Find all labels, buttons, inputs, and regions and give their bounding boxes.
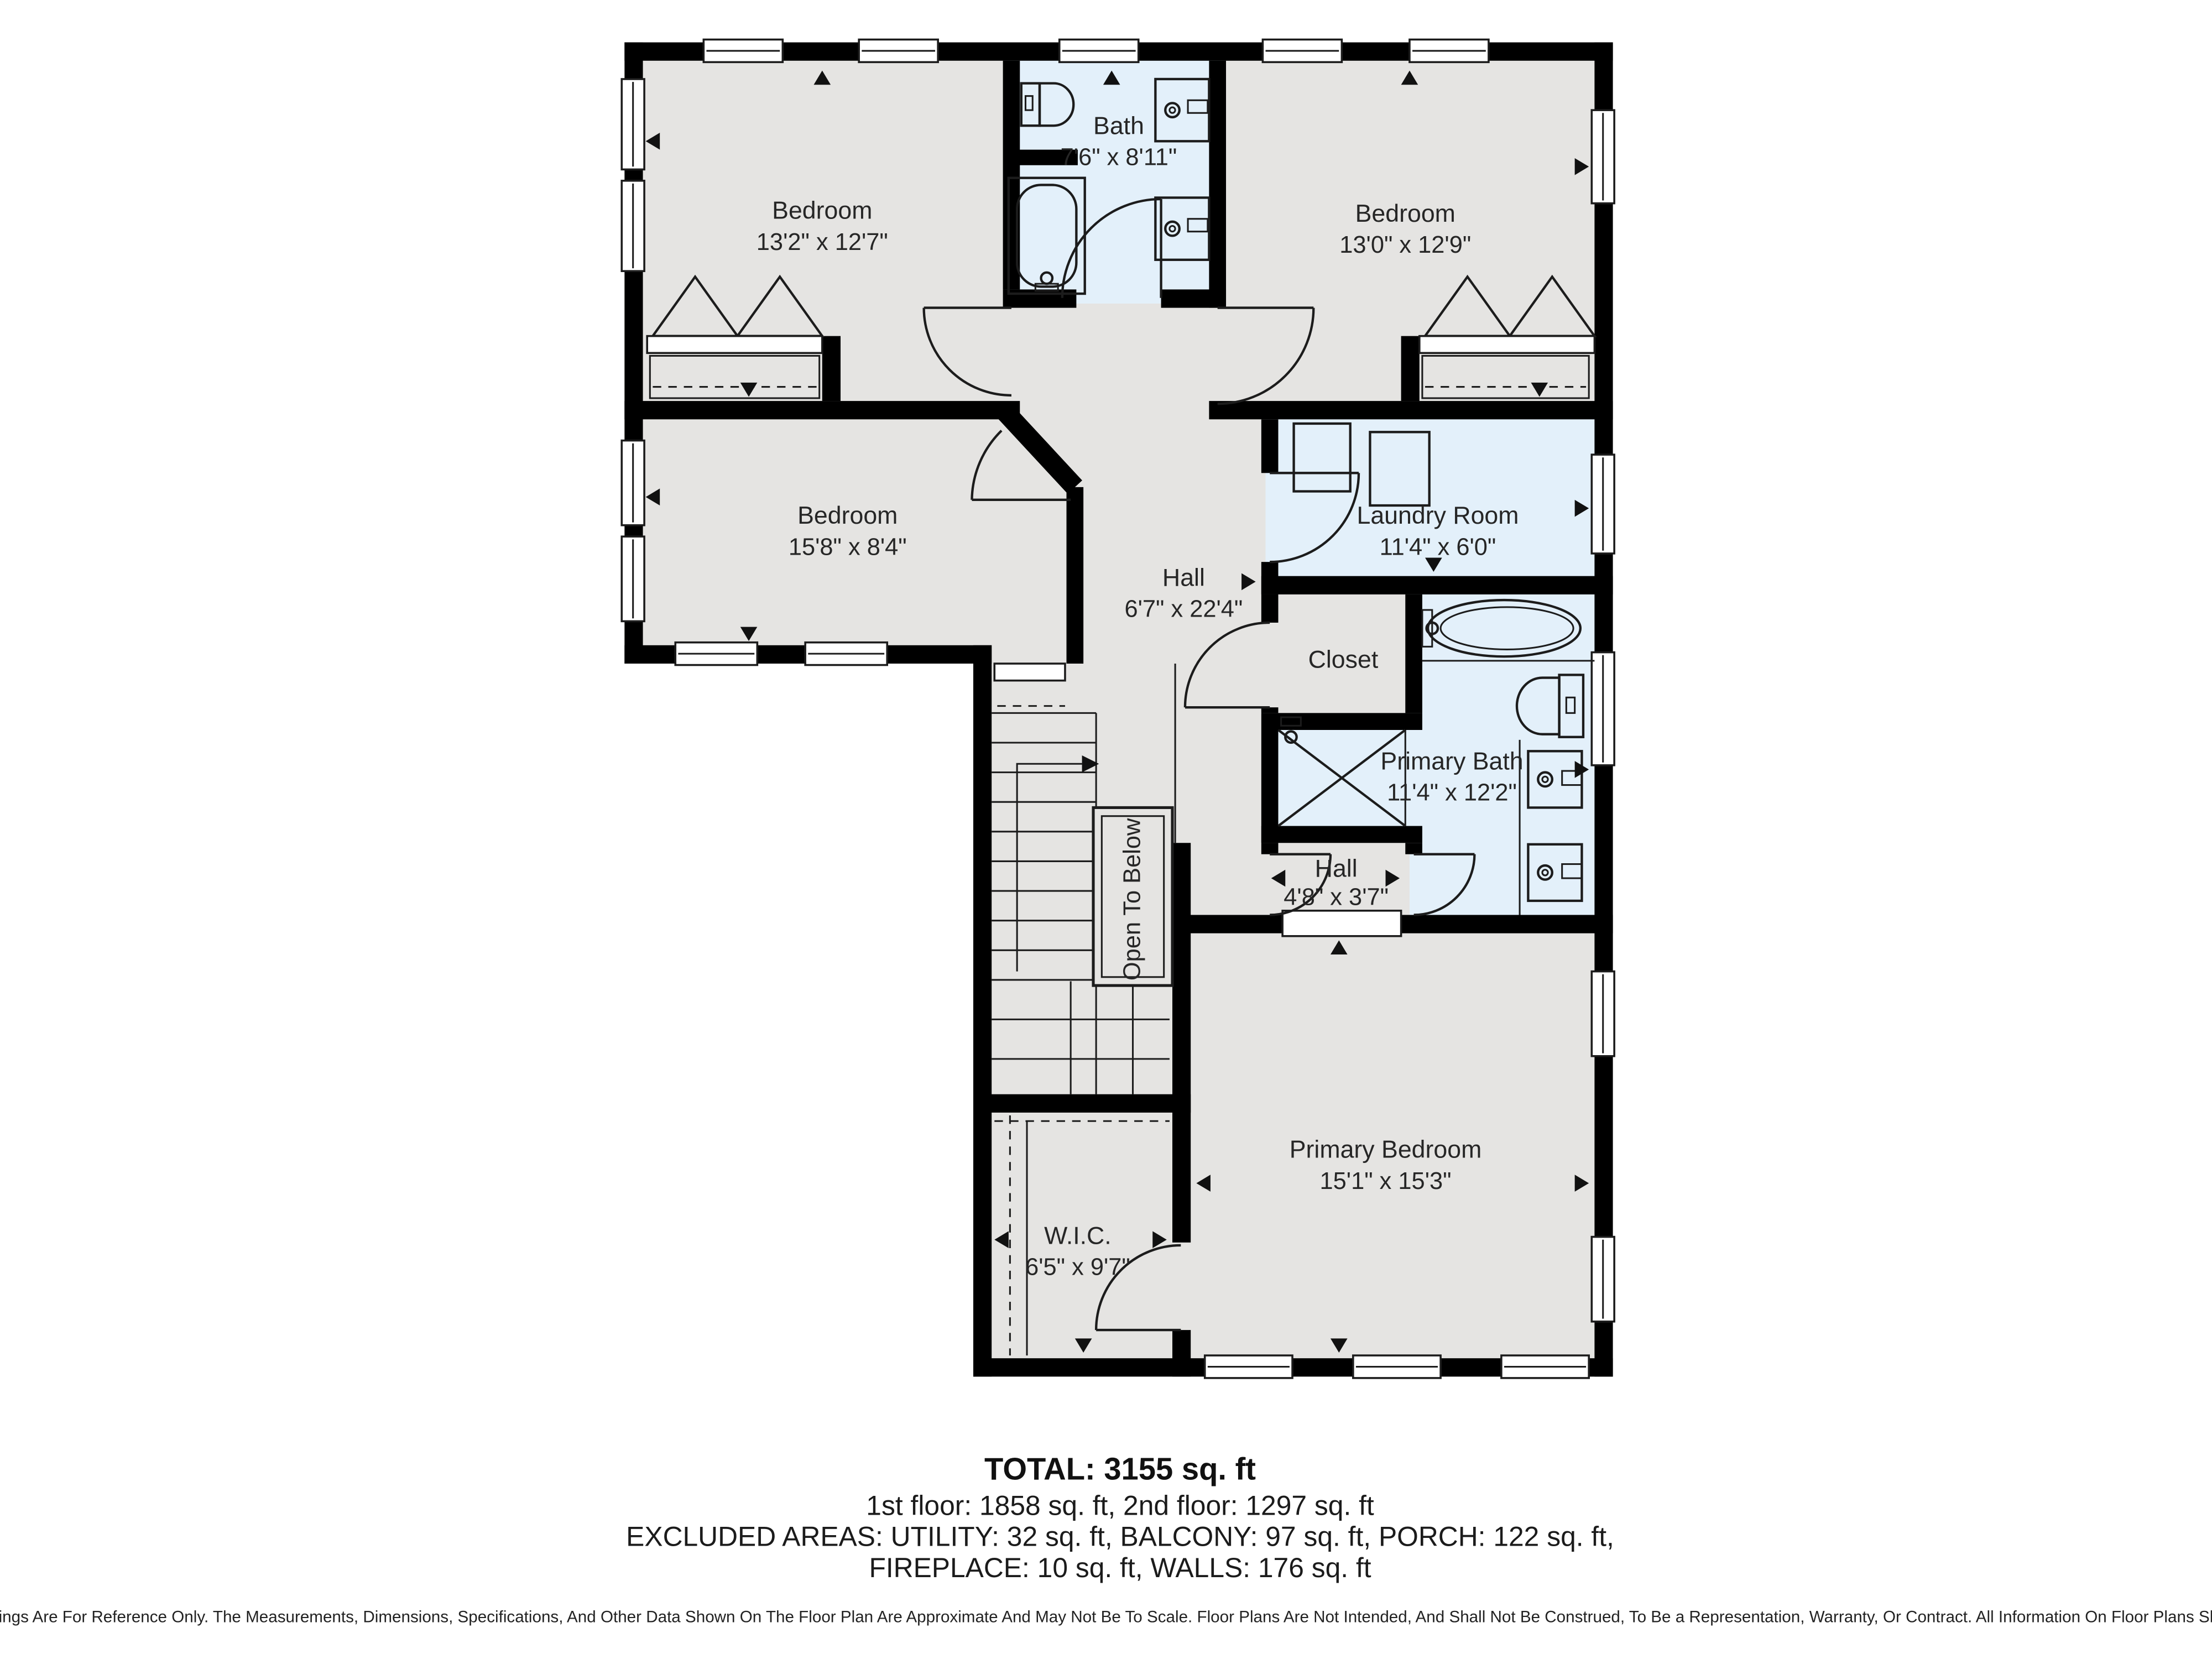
room-closet: Closet xyxy=(1308,646,1379,674)
room-dims: 13'2" x 12'7" xyxy=(757,229,888,255)
window xyxy=(859,39,938,62)
closet-track xyxy=(1420,336,1595,353)
room-name: Hall xyxy=(1162,565,1205,592)
window xyxy=(1410,39,1489,62)
window xyxy=(675,643,757,665)
room-name: Primary Bedroom xyxy=(1290,1136,1482,1164)
excluded-areas-text-2: FIREPLACE: 10 sq. ft, WALLS: 176 sq. ft xyxy=(869,1552,1371,1583)
room-dims: 7'6" x 8'11" xyxy=(1061,144,1177,171)
closet-track xyxy=(647,336,822,353)
window xyxy=(703,39,782,62)
room-dims: 6'5" x 9'7" xyxy=(1025,1254,1130,1281)
window xyxy=(622,181,644,271)
room-dims: 4'8" x 3'7" xyxy=(1284,884,1389,911)
room-dims: 11'4" x 12'2" xyxy=(1387,780,1517,806)
window xyxy=(1592,972,1614,1056)
total-area-text: TOTAL: 3155 sq. ft xyxy=(984,1452,1256,1486)
excluded-areas-text: EXCLUDED AREAS: UTILITY: 32 sq. ft, BALC… xyxy=(626,1521,1614,1552)
threshold-primary-bedroom xyxy=(1282,911,1401,936)
window xyxy=(805,643,887,665)
room-dims: 15'1" x 15'3" xyxy=(1320,1168,1452,1194)
window xyxy=(1501,1355,1589,1378)
window xyxy=(622,536,644,621)
window xyxy=(1262,39,1342,62)
room-name: Closet xyxy=(1308,646,1379,674)
room-name: Bedroom xyxy=(1355,200,1455,227)
room-name: Primary Bath xyxy=(1380,748,1523,775)
room-dims: 15'8" x 8'4" xyxy=(789,534,907,560)
window xyxy=(1592,455,1614,554)
room-name: Bedroom xyxy=(797,502,898,529)
floor-plan-canvas: Open To Below Bedroom 1 xyxy=(0,0,2212,1659)
disclaimer-text: Floor Plans Provided In Our Listings Are… xyxy=(0,1608,2212,1626)
room-name: Bedroom xyxy=(772,197,872,225)
window xyxy=(1592,653,1614,765)
window xyxy=(622,441,644,525)
room-dims: 11'4" x 6'0" xyxy=(1380,534,1496,560)
open-to-below-box: Open To Below xyxy=(1093,807,1172,985)
room-name: Laundry Room xyxy=(1357,502,1519,529)
room-dims: 13'0" x 12'9" xyxy=(1339,232,1471,258)
room-name: Bath xyxy=(1093,113,1144,140)
window xyxy=(1205,1355,1292,1378)
floor-areas-text: 1st floor: 1858 sq. ft, 2nd floor: 1297 … xyxy=(866,1490,1374,1521)
open-to-below-label: Open To Below xyxy=(1119,818,1145,980)
room-name: W.I.C. xyxy=(1044,1222,1112,1249)
threshold-understair xyxy=(994,664,1065,681)
window xyxy=(1592,110,1614,204)
room-dims: 6'7" x 22'4" xyxy=(1125,596,1243,623)
window xyxy=(1060,39,1139,62)
window xyxy=(1592,1237,1614,1322)
window xyxy=(1353,1355,1441,1378)
room-name: Hall xyxy=(1315,855,1358,883)
area-summary: TOTAL: 3155 sq. ft 1st floor: 1858 sq. f… xyxy=(626,1452,1614,1583)
window xyxy=(622,79,644,169)
